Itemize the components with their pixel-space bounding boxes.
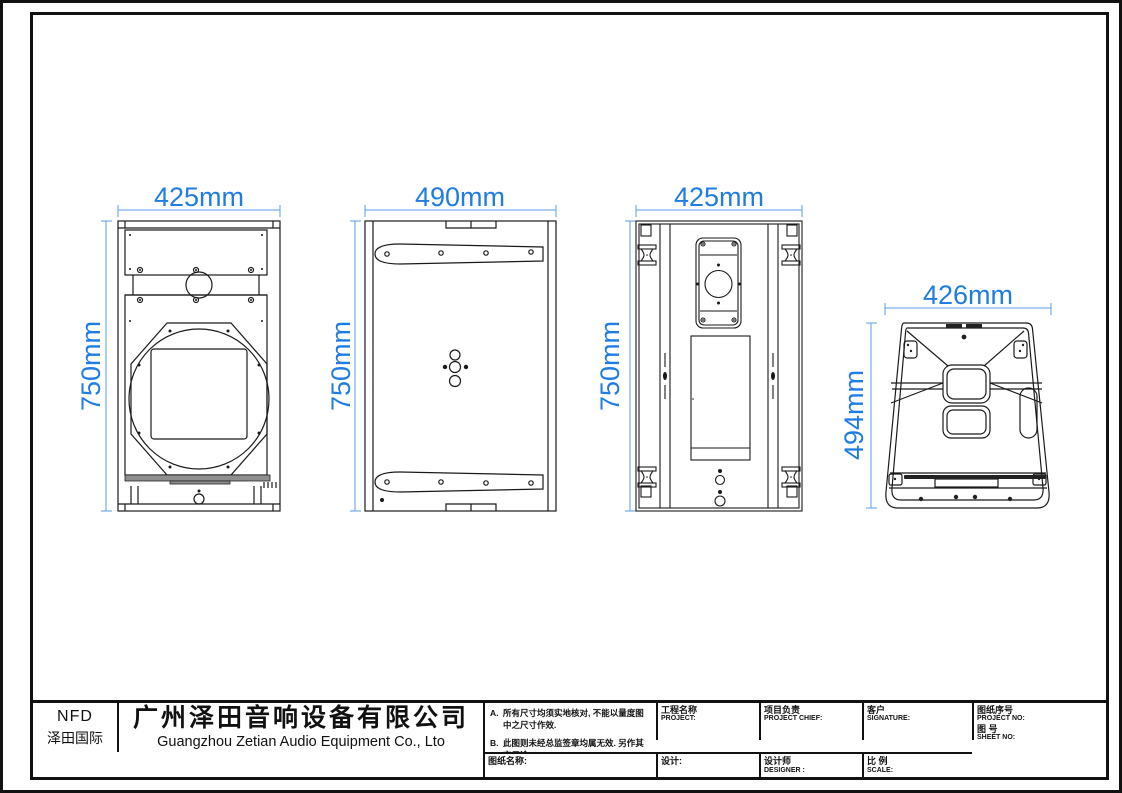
- front-dimension-lines: [101, 205, 280, 511]
- field-project-no: 图纸序号 PROJECT NO: 图 号 SHEET NO:: [972, 703, 1106, 740]
- field-design-label: 设计:: [661, 756, 756, 766]
- side-cabinet-outline: [365, 221, 556, 511]
- logo-block: NFD 泽田国际: [33, 703, 117, 752]
- bevel-edges: [891, 331, 1042, 403]
- field-project-label-cn: 工程名称: [661, 705, 756, 715]
- notes-block: A. 所有尺寸均须实地核对, 不能以量度图中之尺寸作效. B. 此图则未经总监签…: [483, 703, 656, 752]
- rear-view-drawing: [608, 203, 813, 523]
- horn-panel: [125, 230, 267, 275]
- front-height-dimension: 750mm: [77, 306, 105, 426]
- woofer-cutout-circle: [129, 329, 269, 469]
- field-scale-label-cn: 比 例: [867, 756, 969, 766]
- note-b-text: 此图则未经总监签章均属无效. 另作其它用途.: [503, 737, 651, 753]
- rear-height-dimension: 750mm: [596, 306, 624, 426]
- field-designer-label-cn: 设计师: [764, 756, 859, 766]
- brand-name-cn: 泽田国际: [47, 728, 103, 748]
- connector-plate: [696, 238, 741, 328]
- top-view-drawing: [848, 283, 1063, 523]
- field-sheet-no-label-en: SHEET NO:: [977, 734, 1103, 740]
- company-block: 广州泽田音响设备有限公司 Guangzhou Zetian Audio Equi…: [117, 703, 483, 752]
- company-name-cn: 广州泽田音响设备有限公司: [133, 705, 469, 733]
- handle-cutout-lower: [943, 406, 990, 438]
- field-project: 工程名称 PROJECT:: [656, 703, 759, 740]
- field-project-chief: 项目负责 PROJECT CHIEF:: [759, 703, 862, 740]
- top-height-dimension: 494mm: [840, 355, 868, 475]
- note-a: A. 所有尺寸均须实地核对, 不能以量度图中之尺寸作效.: [490, 707, 651, 732]
- note-a-marker: A.: [490, 707, 503, 732]
- field-drawing-name-label: 图纸名称:: [488, 756, 653, 766]
- side-screws: [380, 365, 468, 502]
- field-scale-label-en: SCALE:: [867, 767, 969, 775]
- field-customer-label-cn: 客户: [867, 705, 969, 715]
- pole-mount-fittings: [450, 350, 461, 387]
- front-bottom-shelf: [125, 475, 270, 484]
- corner-pad-left: [904, 341, 917, 358]
- field-chief-label-cn: 项目负责: [764, 705, 859, 715]
- amp-recess: [691, 336, 750, 460]
- rear-width-dimension: 425mm: [663, 183, 775, 211]
- speakon-connector-2: [715, 496, 725, 506]
- field-scale: 比 例 SCALE:: [862, 752, 972, 777]
- side-width-dimension: 490mm: [404, 183, 516, 211]
- field-customer-label-en: SIGNATURE:: [867, 715, 969, 723]
- handle-cutout-upper: [943, 365, 990, 403]
- company-name-en: Guangzhou Zetian Audio Equipment Co., Lt…: [157, 734, 445, 750]
- speakon-connector-1: [716, 476, 725, 485]
- drawing-sheet: 425mm 750mm 490mm 750mm 425mm 750mm 426m…: [0, 0, 1122, 793]
- note-b: B. 此图则未经总监签章均属无效. 另作其它用途.: [490, 737, 651, 753]
- field-project-no-label-en: PROJECT NO:: [977, 715, 1103, 723]
- field-drawing-name: 图纸名称:: [483, 752, 656, 777]
- field-designer-label-en: DESIGNER :: [764, 767, 859, 775]
- woofer-magnet-square: [151, 349, 247, 439]
- top-width-dimension: 426mm: [912, 281, 1024, 309]
- port-circle: [186, 272, 212, 298]
- side-height-dimension: 750mm: [327, 306, 355, 426]
- field-chief-label-en: PROJECT CHIEF:: [764, 715, 859, 723]
- field-designer: 设计师 DESIGNER :: [759, 752, 862, 777]
- top-rail-strap: [375, 244, 543, 264]
- rear-screws: [646, 243, 792, 494]
- side-view-drawing: [338, 203, 568, 523]
- field-project-label-en: PROJECT:: [661, 715, 756, 723]
- field-project-no-label-cn: 图纸序号: [977, 705, 1103, 715]
- front-width-dimension: 425mm: [143, 183, 255, 211]
- corner-pad-right: [1014, 341, 1027, 358]
- field-customer: 客户 SIGNATURE:: [862, 703, 972, 740]
- title-block: NFD 泽田国际 广州泽田音响设备有限公司 Guangzhou Zetian A…: [30, 700, 1109, 780]
- front-view-drawing: [98, 203, 298, 523]
- front-cabinet-outline: [118, 221, 280, 511]
- brand-name: NFD: [57, 708, 93, 726]
- field-design: 设计:: [656, 752, 759, 777]
- note-b-marker: B.: [490, 737, 503, 753]
- field-sheet-no-label-cn: 图 号: [977, 724, 1103, 734]
- side-dimension-lines: [350, 205, 556, 511]
- bottom-rail-strap: [375, 472, 543, 492]
- note-a-text: 所有尺寸均须实地核对, 不能以量度图中之尺寸作效.: [503, 707, 651, 732]
